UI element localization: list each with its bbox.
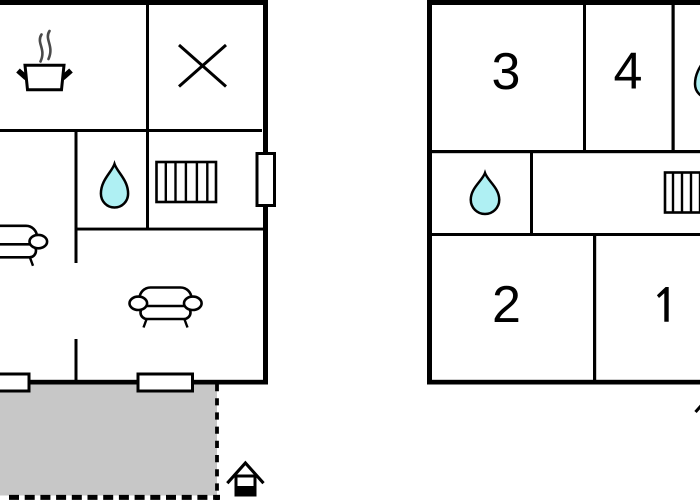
svg-text:3: 3 — [492, 43, 521, 101]
svg-text:4: 4 — [614, 42, 643, 100]
svg-text:2: 2 — [492, 276, 521, 334]
